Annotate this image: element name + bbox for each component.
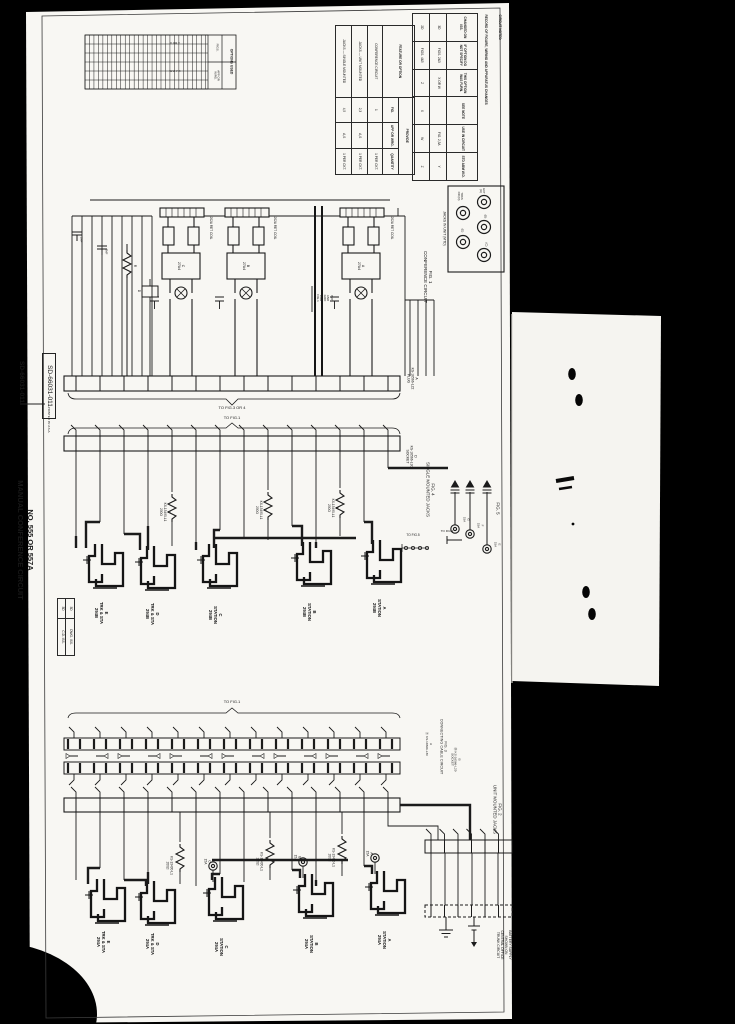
notes-cell: FIGS. 4&5 bbox=[413, 41, 430, 69]
fig1-resistor-r-label: R bbox=[131, 261, 137, 271]
fig2-plug-a: A 15A bbox=[364, 847, 373, 861]
notes-row: 3D FIGS. 2&3 X OR W FIG. 2,3A Y bbox=[430, 14, 447, 181]
fig1-strip-label: A KS-16566-L22 PLUG bbox=[406, 357, 419, 401]
qty-cell: 1 PER CKT. bbox=[336, 149, 352, 175]
fig2-resistor-3: KS-13490-L1 200Ω bbox=[326, 842, 335, 874]
fig2-station-e: E TRK & STA 294A bbox=[96, 924, 110, 960]
app-cell: A,S bbox=[351, 123, 367, 149]
qty-cell: 1 PER CKT. bbox=[367, 149, 383, 175]
issue-row: 3D DWG. ISS. bbox=[66, 599, 75, 656]
notes-col-header: STD ABM W.D. bbox=[447, 153, 478, 181]
fig4-to-note: TO FIG.1 bbox=[212, 416, 252, 422]
fig4-station-e: E TRK & STA 294B bbox=[94, 595, 108, 631]
fig4-strip-label: D KS-16566-L30 SOCKET bbox=[405, 434, 418, 480]
options-figs-header: FIGS. bbox=[212, 36, 219, 60]
issue-cell: DWG. ISS. bbox=[66, 619, 75, 656]
issue-row: 3D C.D. ISS. bbox=[58, 599, 67, 656]
fig3-a-label: A Ⓣ KS-16566-L30 bbox=[422, 715, 432, 773]
fig2-plug-c: C 15A bbox=[202, 855, 211, 869]
fig4-resistor-c: C KS-13490-L1 200Ω bbox=[158, 495, 170, 529]
feature-cell: JACKS — SINGLE MOUNTED bbox=[336, 26, 352, 98]
fig2-station-d: D TRK & STA 294A bbox=[145, 926, 159, 962]
notes-col-header: SEE NOTE bbox=[447, 97, 478, 125]
issue-cell: 3D bbox=[66, 599, 75, 619]
notes-title: CIRCUIT NOTES: bbox=[493, 14, 506, 181]
qty-cell: 1 PER CKT. bbox=[351, 149, 367, 175]
feature-option-table: FEATURE OR OPTION PROVIDE FIG. APP OR WR… bbox=[335, 25, 415, 175]
fig1-to-note: TO FIG.3 OR 4 bbox=[202, 406, 262, 412]
notes-subtitle: RECORD OF FIGURE, WIRING AND APPARATUS C… bbox=[477, 14, 492, 181]
options-used-header: OPTIONS USED bbox=[225, 36, 234, 88]
notes-cell: Z bbox=[413, 69, 430, 97]
fig1-relay-b: B 27A4 bbox=[240, 258, 250, 274]
feature-row: JACKS — SINGLE MOUNTED 4,5 A,S 1 PER CKT… bbox=[336, 26, 352, 175]
notes-cell: Z bbox=[413, 153, 430, 181]
second-paper-sheet bbox=[512, 312, 661, 686]
notes-cell: FIGS. 2&3 bbox=[430, 41, 447, 69]
notes-cell bbox=[430, 97, 447, 125]
fig4-to-fig5-note: TO FIG.5 bbox=[398, 534, 428, 539]
notes-header-row: CHANGED ON ISS. IF OPTION DO NOT SPECIFY… bbox=[447, 14, 478, 181]
notes-cell: X bbox=[413, 97, 430, 125]
issue-cell: C.D. ISS. bbox=[58, 619, 67, 656]
app-cell bbox=[367, 123, 383, 149]
fig-col-header: FIG. bbox=[383, 97, 399, 123]
fig2-battery-note: BATTERY SUPPLY SHOWN ON CENTRAL OFFICE T… bbox=[492, 919, 512, 971]
fig1-relay-a: A 27A4 bbox=[355, 258, 365, 274]
fig4-caption: FIG. 4 SINGLE MOUNTED JACKS bbox=[425, 443, 436, 537]
notes-col-header: USE IN CIRCUIT bbox=[447, 125, 478, 153]
fig-cell: 1 bbox=[367, 97, 383, 123]
jacks-box-caption: JACKS IN UNIT (MTD) bbox=[440, 198, 447, 260]
sd-number-margin: SD-66031-011 bbox=[15, 350, 25, 414]
fig2-station-a: A STATION 294A bbox=[377, 922, 391, 958]
circuit-notes-table: CIRCUIT NOTES: RECORD OF FIGURE, WIRING … bbox=[412, 13, 506, 181]
qty-col-header: QUANTITY bbox=[383, 149, 399, 175]
feature-cell: CONFERENCE CIRCUIT bbox=[367, 26, 383, 98]
fig1-relay-c: C 27A4 bbox=[175, 258, 185, 274]
printed-note: PRINTED IN U.S.A. bbox=[44, 402, 50, 438]
feature-cell: JACKS — UNIT MOUNTED bbox=[351, 26, 367, 98]
fig-cell: 4,5 bbox=[336, 97, 352, 123]
feature-row: CONFERENCE CIRCUIT 1 1 PER CKT. bbox=[367, 26, 383, 175]
fig1-cap-label: 2MF bbox=[103, 245, 108, 259]
jack-label-trks-d: TRKS OR (D) bbox=[455, 186, 463, 206]
fig1-cap-label: 2MF bbox=[78, 233, 83, 247]
app-col-header: APP OR WRG. bbox=[383, 123, 399, 149]
fig5-plug-e: E 15A bbox=[492, 538, 501, 552]
options-figs-values: X OR Y bbox=[160, 42, 190, 47]
fig2-plug-b: B 15A bbox=[292, 851, 301, 865]
fig1-retcoil-label: 202A RET COIL bbox=[270, 206, 276, 250]
jack-label-ext-a: EXT (A) bbox=[477, 182, 485, 200]
notes-cell: FIG. 2,3A bbox=[430, 125, 447, 153]
fig4-station-b: B STATION 294B bbox=[302, 594, 316, 630]
fig2-station-b: B STATION 294A bbox=[304, 926, 318, 962]
fig-cell: 2,3 bbox=[351, 97, 367, 123]
drawing-title: NO. 555 OR 557A MANUAL CONFERENCE CIRCUI… bbox=[15, 455, 35, 625]
notes-cell: 2D bbox=[413, 14, 430, 42]
fig2-resistor-1: KS-13490-L1 200Ω bbox=[164, 850, 173, 882]
fig4-station-c: C STATION 294B bbox=[208, 597, 222, 633]
fig5-plug-f: F 15A bbox=[475, 519, 484, 533]
issue-table: 3D DWG. ISS. 3D C.D. ISS. bbox=[57, 598, 75, 656]
notes-row: 2D FIGS. 4&5 Z X W Z bbox=[413, 14, 430, 181]
notes-cell: Y bbox=[430, 153, 447, 181]
fig4-station-a: A STATION 294B bbox=[372, 590, 386, 626]
app-cell: A,S bbox=[336, 123, 352, 149]
fig5-caption: FIG. 5 bbox=[494, 495, 501, 523]
fig2-station-c: C STATION 294A bbox=[214, 929, 228, 965]
fig1-caption: FIG. 1 CONFERENCE CIRCUIT bbox=[421, 236, 433, 318]
fig3-caption: FIG. 3 CONNECTING CABLE CIRCUIT bbox=[437, 712, 448, 782]
fig4-resistor-a: A KS-13490-L1 200Ω bbox=[326, 491, 338, 525]
fig2-caption: FIG. 2 UNIT MOUNTED JACKS bbox=[492, 767, 503, 853]
notes-col-header: IF OPTION DO NOT SPECIFY bbox=[447, 41, 478, 69]
notes-col-header: CHANGED ON ISS. bbox=[447, 14, 478, 42]
fig3-to-note: TO FIG.1 bbox=[212, 700, 252, 706]
options-app-header: APP OR WIRG. bbox=[211, 64, 220, 88]
fig1-bat-note: BAT AND GRD FOR FIG.1 bbox=[313, 286, 333, 310]
fig5-to-note: TO FIG.4 bbox=[434, 530, 460, 535]
notes-cell: W bbox=[413, 125, 430, 153]
fig1-retcoil-label: 202A RET COIL bbox=[206, 206, 212, 250]
notes-cell: X OR W bbox=[430, 69, 447, 97]
feature-col-header: FEATURE OR OPTION bbox=[383, 26, 415, 98]
fig1-coil-d-label: D bbox=[135, 286, 141, 296]
fig5-plug-g: G 15A bbox=[461, 513, 470, 527]
fig3-b-label: B Ⓡ KS-16566-L29 SOCKET bbox=[448, 729, 461, 791]
notes-cell: 3D bbox=[430, 14, 447, 42]
options-app-values: W Z Y X bbox=[150, 70, 200, 75]
jack-label-c: (C) bbox=[483, 239, 488, 251]
feature-row: JACKS — UNIT MOUNTED 2,3 A,S 1 PER CKT. bbox=[351, 26, 367, 175]
fig4-station-d: D TRK & STA 294B bbox=[145, 596, 159, 632]
scanned-schematic-page: SD-66031-011 PRINTED IN U.S.A. SD-66031-… bbox=[0, 0, 735, 1024]
fig4-resistor-b: B KS-13490-L1 200Ω bbox=[254, 493, 266, 527]
fig1-retcoil-label: 202A RET COIL bbox=[387, 206, 393, 250]
fig2-resistor-2: KS-13490-L1 200Ω bbox=[254, 846, 263, 878]
issue-cell: 3D bbox=[58, 599, 67, 619]
jack-label-e: (E) bbox=[459, 225, 464, 237]
notes-col-header: THIS OPTION WAS FURN. bbox=[447, 69, 478, 97]
jack-label-b: (B) bbox=[482, 211, 487, 223]
